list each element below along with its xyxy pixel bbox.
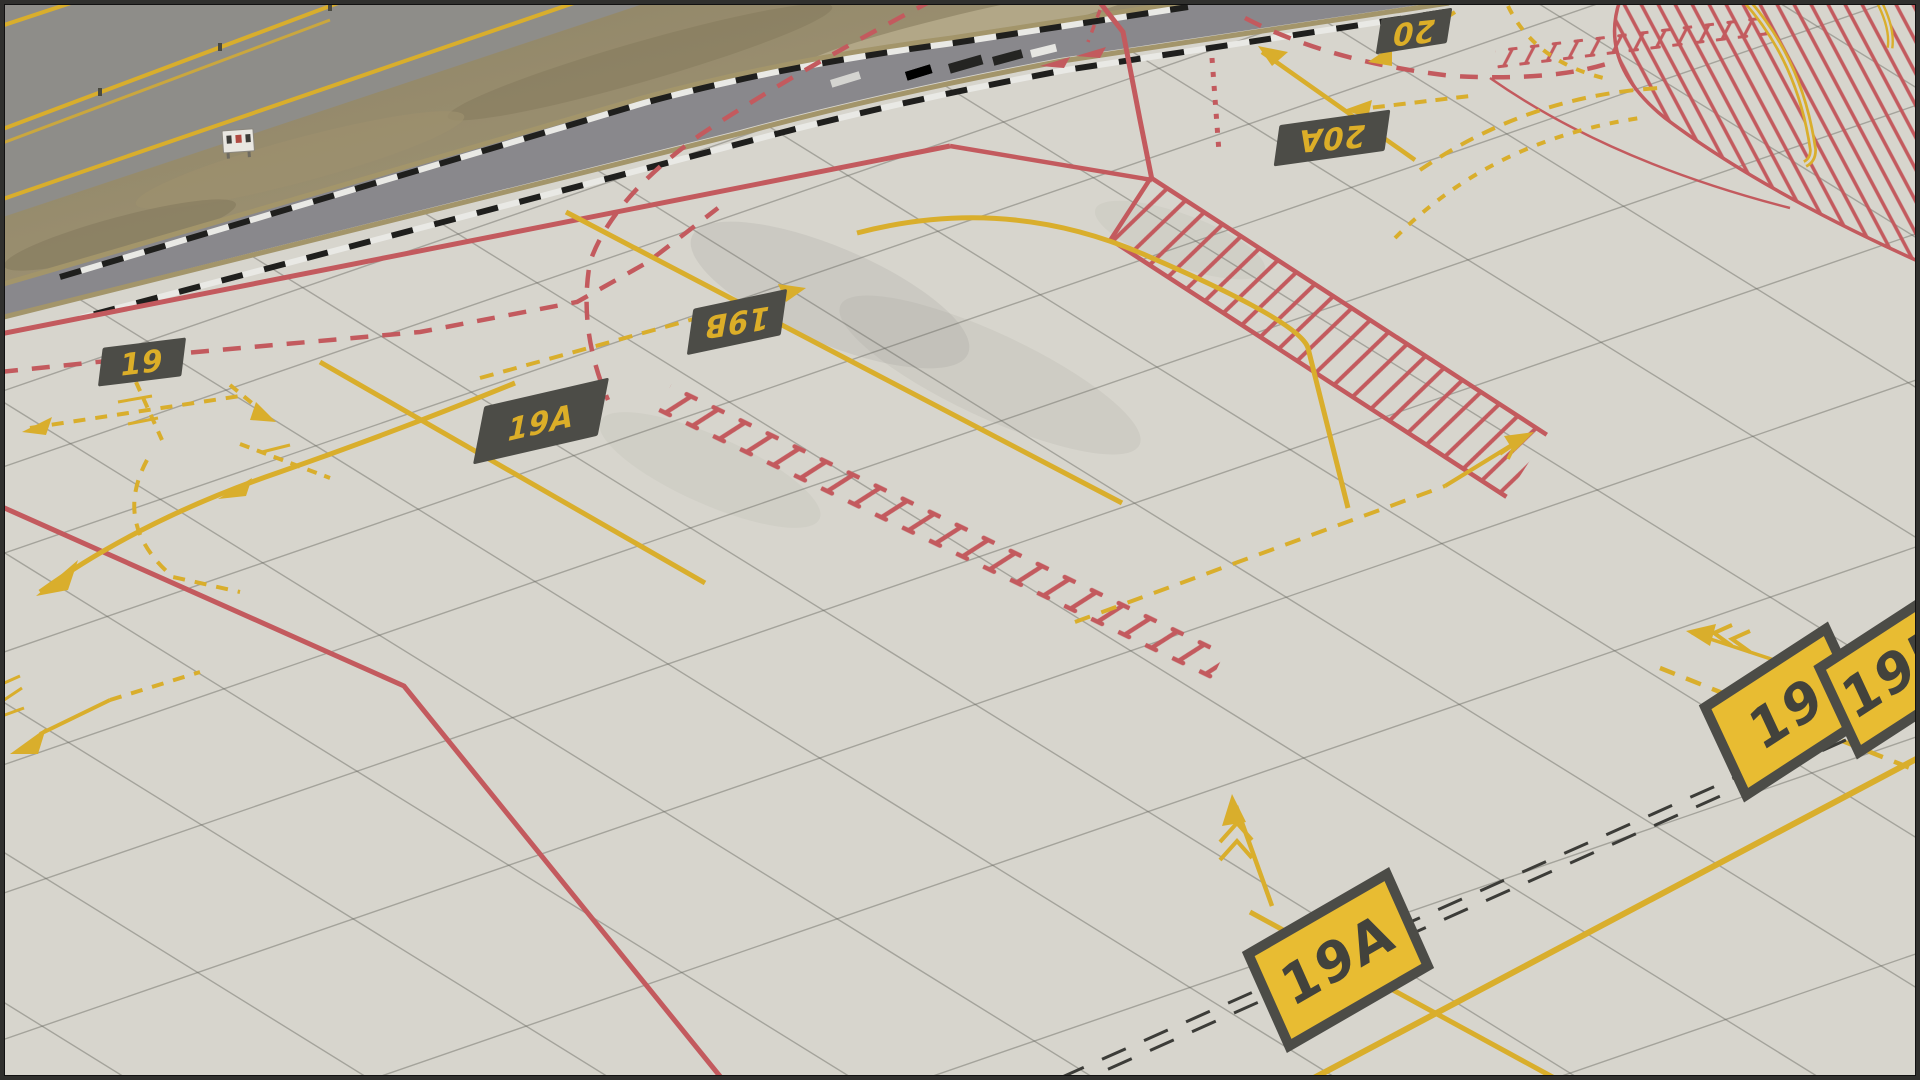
sim-viewport[interactable]: 19 19A 19B 20 20A 19 19B 19A — [0, 0, 1920, 1080]
sign-19-label: 19 — [118, 343, 166, 384]
sign-20a-label: 20A — [1295, 117, 1368, 158]
sign-20-label: 20 — [1389, 11, 1439, 52]
apron-scene: 19 19A 19B 20 20A 19 19B 19A — [0, 0, 1920, 1080]
